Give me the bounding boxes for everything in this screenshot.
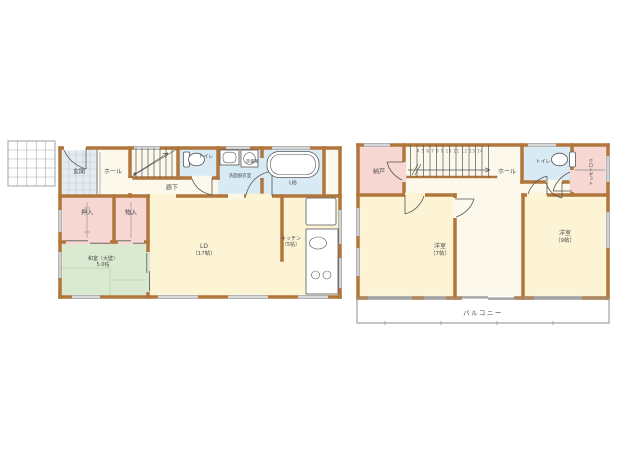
label-toilet-2f: トイレ: [535, 159, 550, 165]
vanity-fixture: [220, 150, 239, 165]
label-washer: 洗濯機: [246, 159, 258, 164]
bathtub-fixture: [267, 152, 319, 178]
label-monoire: 物入: [125, 209, 137, 217]
label-bath: UB: [289, 181, 297, 188]
label-toilet-1f: トイレ: [198, 154, 213, 160]
label-stair-numbers: 4 5 6 7 8 9 10 11 12 13 14: [417, 149, 483, 154]
room-bedroom2: [523, 195, 608, 298]
floorplan-drawing: [0, 0, 640, 453]
label-ld: LD （17帖）: [192, 243, 216, 257]
label-storeroom: 納戸: [373, 168, 385, 176]
label-hall-1f: ホール: [104, 168, 122, 176]
label-bedroom1: 洋室 （7帖）: [430, 243, 450, 257]
label-closet-2f: クローゼット: [587, 159, 593, 186]
floorplan-canvas: 玄関 ホール 廊下 トイレ 洗面脱衣室 洗濯機 UB 押入 物入 和室（大壁） …: [0, 0, 640, 453]
label-hall-2f: ホール: [498, 168, 516, 176]
label-bedroom2: 洋室 （9帖）: [555, 230, 575, 244]
label-oshiire: 押入: [81, 209, 93, 217]
porch-grid: [8, 141, 55, 186]
label-kitchen: キッチン （5帖）: [281, 236, 301, 249]
floor1-plan: [8, 141, 342, 299]
toilet-fixture-2f: [552, 152, 576, 167]
label-washroom: 洗面脱衣室: [229, 174, 252, 180]
kitchen-counter-fixture: [306, 229, 338, 294]
label-corridor: 廊下: [166, 184, 178, 192]
label-entrance: 玄関: [73, 168, 85, 176]
label-balcony: バルコニー: [463, 309, 503, 317]
room-washitsu: [60, 242, 148, 297]
refrigerator-space: [306, 198, 336, 225]
label-washitsu: 和室（大壁） 5.0帖: [88, 256, 118, 269]
